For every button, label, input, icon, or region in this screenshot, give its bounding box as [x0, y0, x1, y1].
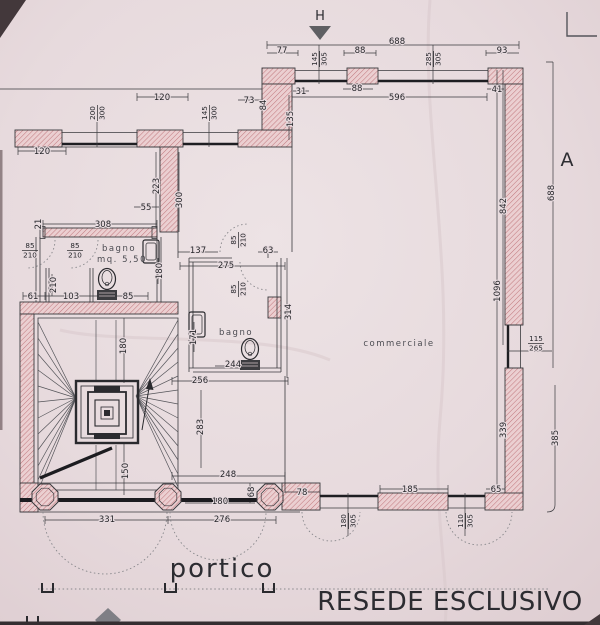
dim-fraction-bottom: 210	[239, 282, 248, 296]
dim-fraction-label: 200300	[88, 105, 106, 121]
dim-label: 88	[352, 84, 363, 94]
dim-label: 223	[152, 178, 162, 194]
dim-label: 84	[259, 100, 269, 111]
dim-label: 41	[492, 85, 503, 95]
room-label-bagno1-area: mq. 5,50	[97, 255, 147, 265]
dim-fraction-bottom: 305	[434, 52, 443, 66]
dim-fraction-bottom: 210	[68, 251, 82, 260]
dim-label: 150	[121, 463, 131, 479]
dim-label: 256	[192, 376, 208, 386]
dim-label: 180	[212, 497, 228, 507]
dim-label: 244	[225, 360, 241, 370]
dim-label: 275	[218, 261, 234, 271]
dim-label: 300	[175, 192, 185, 208]
dim-fraction-label: 110305	[456, 513, 474, 529]
dim-label: 688	[547, 185, 557, 201]
dim-label: 596	[389, 93, 405, 103]
dim-fraction-top: 85	[229, 235, 238, 244]
dim-label: 93	[497, 46, 508, 56]
dim-fraction-top: 110	[456, 514, 465, 528]
dim-fraction-top: 145	[310, 52, 319, 66]
dim-label: 248	[220, 470, 236, 480]
section-h-label: H	[315, 9, 325, 24]
dim-label: 68	[247, 487, 257, 498]
room-label-bagno1: bagno	[102, 244, 136, 254]
portico-label: portico	[170, 554, 275, 584]
room-label-commerciale: commerciale	[363, 339, 434, 349]
photo-edge	[0, 622, 600, 625]
dim-fraction-top: 85	[229, 284, 238, 293]
dim-label: 73	[244, 96, 255, 106]
dim-label: 135	[286, 111, 296, 127]
dim-label: 120	[34, 147, 50, 157]
dim-label: 63	[263, 246, 274, 256]
dim-fraction-label: 145300	[200, 105, 218, 121]
dim-fraction-label: 145305	[310, 51, 328, 67]
dim-fraction-bottom: 305	[320, 52, 329, 66]
dim-label: 120	[154, 93, 170, 103]
dim-fraction-bottom: 300	[210, 106, 219, 120]
photo-edge	[0, 150, 3, 430]
floor-plan-drawing: H A bagno mq. 5,50 bagno commerciale por…	[0, 0, 600, 625]
dim-fraction-label: 180305	[339, 513, 357, 529]
dim-fraction-bottom: 305	[349, 514, 358, 528]
dim-fraction-bottom: 305	[466, 514, 475, 528]
dim-label: 78	[297, 488, 308, 498]
dim-label: 103	[63, 292, 79, 302]
dim-label: 688	[389, 37, 405, 47]
dim-fraction-bottom: 300	[98, 106, 107, 120]
dim-fraction-top: 85	[70, 241, 79, 250]
dim-label: 171	[189, 329, 199, 345]
dim-fraction-bottom: 210	[239, 233, 248, 247]
dim-label: 210	[49, 277, 59, 293]
dim-label: 180	[119, 338, 129, 354]
dim-label: 314	[284, 304, 294, 320]
dim-label: 55	[141, 203, 152, 213]
dim-label: 61	[28, 292, 39, 302]
dim-label: 180	[155, 263, 165, 279]
room-label-bagno2: bagno	[219, 328, 253, 338]
dim-fraction-label: 285305	[424, 51, 442, 67]
dim-label: 283	[196, 419, 206, 435]
floor-plan-photo: H A bagno mq. 5,50 bagno commerciale por…	[0, 0, 600, 625]
dim-label: 88	[355, 46, 366, 56]
resede-esclusivo-label: RESEDE ESCLUSIVO	[317, 587, 582, 617]
dim-label: 65	[491, 485, 502, 495]
section-a-label: A	[561, 149, 574, 171]
dim-label: 185	[402, 485, 418, 495]
dim-label: 77	[277, 46, 288, 56]
dim-label: 331	[99, 515, 115, 525]
column	[155, 484, 181, 510]
dim-label: 276	[214, 515, 230, 525]
dim-label: 308	[95, 220, 111, 230]
dim-label: 85	[123, 292, 134, 302]
dim-label: 385	[551, 430, 561, 446]
dim-label: 339	[499, 422, 509, 438]
dim-label: 842	[499, 198, 509, 214]
dim-fraction-top: 145	[200, 106, 209, 120]
dim-fraction-top: 115	[529, 334, 543, 343]
column	[257, 484, 283, 510]
dim-fraction-top: 200	[88, 106, 97, 120]
dim-label: 1096	[493, 280, 503, 302]
dim-label: 21	[34, 219, 44, 230]
dim-fraction-top: 85	[25, 241, 34, 250]
dim-fraction-label: 115265	[528, 334, 544, 352]
dim-label: 137	[190, 246, 206, 256]
column	[32, 484, 58, 510]
dim-fraction-top: 285	[424, 52, 433, 66]
dim-fraction-bottom: 210	[23, 251, 37, 260]
dim-fraction-top: 180	[339, 514, 348, 528]
dim-fraction-bottom: 265	[529, 344, 543, 353]
dim-label: 31	[296, 87, 307, 97]
